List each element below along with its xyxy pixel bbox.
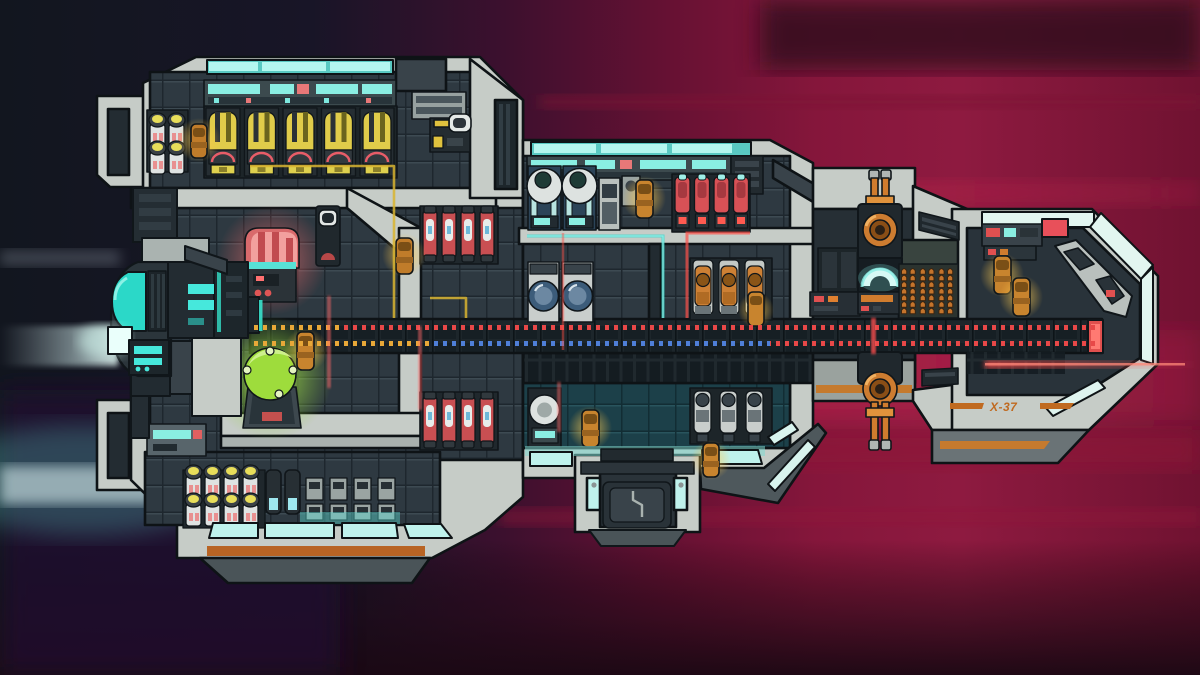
svg-text:X-37: X-37	[989, 400, 1018, 414]
